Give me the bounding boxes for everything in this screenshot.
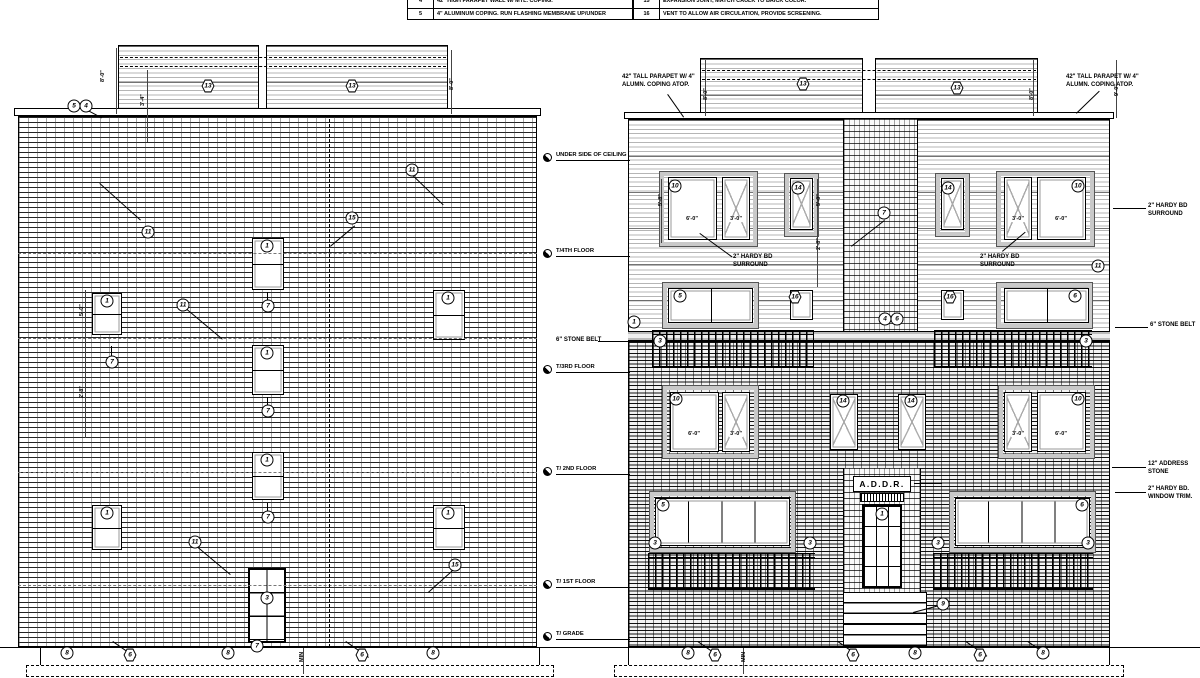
keynote-tag-number: 6 [848, 650, 859, 661]
drawing-line [18, 585, 537, 586]
drawing-line [18, 472, 537, 473]
level-marker: T/ 2ND FLOOR [556, 466, 630, 475]
keynote-tag-number: 13 [952, 83, 963, 94]
annotation-text: 3'-4" [140, 94, 146, 106]
annotation-text: 2" HARDY BD [1148, 203, 1187, 209]
keynote-tag-number: 16 [790, 292, 801, 303]
window [955, 498, 1090, 546]
window [1004, 177, 1032, 240]
keynote-tag: 1 [628, 316, 641, 329]
annotation-text: 2" HARDY BD [733, 254, 772, 260]
annotation-text: A.D.D.R. [859, 479, 904, 489]
keynote-tag-number: 7 [252, 641, 263, 652]
keynote-tag-number: 7 [263, 406, 274, 417]
keynote-tag-number: 11 [190, 537, 201, 548]
drawing-line [598, 341, 628, 342]
annotation-text: 2'-8" [816, 238, 822, 250]
keynote-tag: 14 [792, 182, 805, 195]
drawing-line [914, 483, 942, 484]
annotation-text: MIN [299, 652, 305, 662]
level-marker: T/ GRADE [556, 631, 630, 640]
keynote-tag: 1 [442, 292, 455, 305]
keynote-tag: 7 [262, 511, 275, 524]
drawing-line [1115, 327, 1148, 328]
annotation-text: 8'-0" [449, 78, 455, 90]
keynote-tag: 1 [876, 508, 889, 521]
keynote-tag: 8 [222, 647, 235, 660]
keynote-tag-number: 8 [910, 648, 921, 659]
keynote-tag: 9 [937, 598, 950, 611]
annotation-text: 6'-0" [687, 431, 701, 437]
window [655, 498, 790, 546]
keynote-tag-number: 8 [223, 648, 234, 659]
level-marker: T/ 1ST FLOOR [556, 579, 630, 588]
keynote-tag-number: 1 [877, 509, 888, 520]
annotation-text: 5'-0" [79, 304, 85, 316]
keynote-tag-number: 1 [443, 508, 454, 519]
keynote-tag: 5 [674, 290, 687, 303]
level-marker-flag-icon [543, 249, 552, 258]
keynote-tag: 1 [261, 347, 274, 360]
keynote-number: 16 [634, 9, 660, 19]
drawing-line [0, 647, 1200, 648]
keynote-tag: 4 [80, 100, 93, 113]
annotation-text: 42" TALL PARAPET W/ 4" [622, 74, 695, 80]
keynote-tag: 11 [1092, 260, 1105, 273]
keynote-tag: 10 [669, 180, 682, 193]
keynote-tag-number: 10 [1073, 394, 1084, 405]
keynote-tag-number: 11 [407, 165, 418, 176]
drawing-line [116, 48, 117, 114]
keynote-tag-number: 6 [357, 650, 368, 661]
keynote-number: 15 [634, 0, 660, 8]
annotation-text: MIN [741, 652, 747, 662]
drawing-line [329, 119, 330, 647]
annotation-text: 5'-8" [658, 194, 664, 206]
drawing-line [120, 57, 446, 58]
building-element [843, 592, 927, 646]
keynote-tag-number: 5 [69, 101, 80, 112]
keynote-tag-number: 10 [670, 181, 681, 192]
keynote-tag-number: 14 [793, 183, 804, 194]
annotation-text: WINDOW TRIM. [1148, 494, 1192, 500]
keynote-table-left: 4 42" HIGH PARAPET WALL W/ MTL. COPING. … [407, 0, 633, 20]
drawing-line [85, 290, 86, 438]
window [722, 392, 750, 452]
keynote-tag-number: 6 [710, 650, 721, 661]
annotation-text: SURROUND [980, 262, 1015, 268]
keynote-tag: 8 [427, 647, 440, 660]
drawing-line [702, 70, 1036, 71]
keynote-tag: 10 [1072, 393, 1085, 406]
level-name: T/3RD FLOOR [556, 364, 630, 373]
drawing-line [147, 70, 148, 142]
keynote-tag-number: 3 [1083, 538, 1094, 549]
keynote-tag-number: 1 [262, 455, 273, 466]
building-element [860, 493, 904, 502]
keynote-tag-number: 8 [683, 648, 694, 659]
keynote-tag: 1 [442, 507, 455, 520]
keynote-tag-number: 16 [945, 292, 956, 303]
level-name: T/ 2ND FLOOR [556, 466, 630, 475]
drawing-line [702, 79, 1036, 80]
keynote-tag: 3 [649, 537, 662, 550]
keynote-tag-number: 9 [938, 599, 949, 610]
annotation-text: 8'-0" [1029, 88, 1035, 100]
keynote-tag: 3 [932, 537, 945, 550]
annotation-text: 42" TALL PARAPET W/ 4" [1066, 74, 1139, 80]
annotation-text: ALUMN. COPING ATOP. [622, 82, 689, 88]
building-element [248, 568, 286, 643]
keynote-tag: 8 [1037, 647, 1050, 660]
keynote-number: 5 [408, 9, 434, 19]
building-element [624, 112, 1114, 119]
annotation-text: 3'-0" [1011, 431, 1025, 437]
keynote-tag: 6 [1076, 499, 1089, 512]
annotation-text: 3'-0" [1011, 216, 1025, 222]
keynote-tag-number: 13 [203, 81, 214, 92]
keynote-tag-number: 6 [892, 314, 903, 325]
annotation-text: 12" ADDRESS [1148, 461, 1188, 467]
keynote-tag-number: 4 [880, 314, 891, 325]
keynote-tag: 8 [682, 647, 695, 660]
level-name: T/4TH FLOOR [556, 248, 630, 257]
drawing-line [1112, 467, 1146, 468]
annotation-text: 6'-0" [1054, 431, 1068, 437]
keynote-table-right: 15 EXPANSION JOINT, MATCH CAULK TO BRICK… [633, 0, 879, 20]
keynote-tag-number: 3 [655, 336, 666, 347]
building-element [700, 58, 863, 114]
keynote-tag: 15 [449, 559, 462, 572]
keynote-tag: 8 [909, 647, 922, 660]
level-name: T/ 1ST FLOOR [556, 579, 630, 588]
keynote-tag-number: 15 [347, 213, 358, 224]
building-element [26, 665, 554, 677]
keynote-tag: 3 [804, 537, 817, 550]
keynote-tag: 10 [670, 393, 683, 406]
annotation-text: ALUMN. COPING ATOP. [1066, 82, 1133, 88]
keynote-tag-number: 3 [805, 538, 816, 549]
keynote-tag-number: 1 [102, 296, 113, 307]
keynote-tag-number: 6 [1070, 291, 1081, 302]
keynote-tag: 5 [657, 499, 670, 512]
keynote-tag-number: 14 [838, 396, 849, 407]
building-element [648, 553, 815, 590]
keynote-tag-number: 5 [658, 500, 669, 511]
annotation-text: 6" STONE BELT [1150, 322, 1195, 328]
keynote-tag-number: 14 [906, 396, 917, 407]
keynote-tag: 6 [891, 313, 904, 326]
drawing-line [1076, 91, 1100, 114]
keynote-number: 4 [408, 0, 434, 8]
keynote-tag-number: 6 [1077, 500, 1088, 511]
keynote-tag-number: 11 [143, 227, 154, 238]
annotation-text: 8'-0" [100, 70, 106, 82]
keynote-tag: 14 [942, 182, 955, 195]
keynote-tag: 10 [1072, 180, 1085, 193]
keynote-tag: 3 [261, 592, 274, 605]
annotation-text: 3'-0" [729, 216, 743, 222]
keynote-tag-number: 5 [675, 291, 686, 302]
keynote-text: 42" HIGH PARAPET WALL W/ MTL. COPING. [434, 0, 632, 8]
keynote-tag: 15 [346, 212, 359, 225]
building-element [614, 665, 1124, 677]
keynote-tag: 14 [837, 395, 850, 408]
keynote-tag-number: 1 [262, 241, 273, 252]
keynote-tag-number: 8 [1038, 648, 1049, 659]
building-element [934, 330, 1092, 368]
keynote-tag-number: 3 [650, 538, 661, 549]
keynote-tag: 3 [654, 335, 667, 348]
keynote-tag: 7 [262, 300, 275, 313]
keynote-text: VENT TO ALLOW AIR CIRCULATION, PROVIDE S… [660, 9, 878, 19]
keynote-tag: 8 [61, 647, 74, 660]
keynote-tag-number: 15 [450, 560, 461, 571]
keynote-tag-number: 10 [1073, 181, 1084, 192]
keynote-tag-number: 7 [263, 301, 274, 312]
level-marker-flag-icon [543, 467, 552, 476]
annotation-text: SURROUND [1148, 211, 1183, 217]
building-element [652, 330, 814, 368]
keynote-tag-number: 7 [263, 512, 274, 523]
keynote-tag-number: 13 [347, 81, 358, 92]
annotation-text: 8'-0" [703, 88, 709, 100]
annotation-text: 2'-8" [79, 386, 85, 398]
drawing-line [18, 253, 537, 254]
annotation-text: 5'-0" [816, 194, 822, 206]
level-marker: T/4TH FLOOR [556, 248, 630, 257]
keynote-row: 5 4" ALUMINUM COPING. RUN FLASHING MEMBR… [408, 8, 632, 19]
keynote-tag: 11 [189, 536, 202, 549]
keynote-tag: 3 [1080, 335, 1093, 348]
keynote-tag: 1 [261, 454, 274, 467]
keynote-tag: 7 [262, 405, 275, 418]
keynote-tag: 7 [106, 356, 119, 369]
level-marker-flag-icon [543, 153, 552, 162]
annotation-text: 2" HARDY BD. [1148, 486, 1189, 492]
level-name: UNDER SIDE OF CEILING [556, 152, 630, 161]
keynote-row: 16 VENT TO ALLOW AIR CIRCULATION, PROVID… [634, 8, 878, 19]
keynote-tag: 3 [1082, 537, 1095, 550]
building-element [266, 45, 448, 113]
keynote-tag: 6 [1069, 290, 1082, 303]
annotation-text: 6'-0" [1054, 216, 1068, 222]
keynote-tag: 11 [406, 164, 419, 177]
keynote-tag-number: 7 [879, 208, 890, 219]
window [722, 177, 750, 240]
keynote-tag-number: 3 [262, 593, 273, 604]
keynote-tag-number: 11 [178, 300, 189, 311]
keynote-tag: 1 [101, 507, 114, 520]
keynote-tag-number: 10 [671, 394, 682, 405]
annotation-text: STONE [1148, 469, 1169, 475]
keynote-tag-number: 1 [262, 348, 273, 359]
drawing-line [1115, 492, 1146, 493]
keynote-tag-number: 1 [629, 317, 640, 328]
keynote-tag-number: 1 [443, 293, 454, 304]
annotation-text: 6" STONE BELT [556, 337, 601, 343]
keynote-tag-number: 11 [1093, 261, 1104, 272]
building-element [40, 647, 540, 665]
keynote-tag: 7 [878, 207, 891, 220]
keynote-tag: 7 [251, 640, 264, 653]
keynote-tag-number: 3 [1081, 336, 1092, 347]
keynote-tag-number: 7 [107, 357, 118, 368]
keynote-tag: 1 [261, 240, 274, 253]
annotation-text: SURROUND [733, 262, 768, 268]
drawing-line [661, 179, 662, 243]
keynote-tag: 11 [177, 299, 190, 312]
keynote-tag-number: 1 [102, 508, 113, 519]
keynote-tag: 1 [101, 295, 114, 308]
level-marker-flag-icon [543, 365, 552, 374]
building-element [843, 119, 918, 341]
keynote-tag-number: 6 [975, 650, 986, 661]
drawing-line [1113, 208, 1146, 209]
level-marker: UNDER SIDE OF CEILING [556, 152, 630, 161]
keynote-text: EXPANSION JOINT, MATCH CAULK TO BRICK CO… [660, 0, 878, 8]
keynote-tag-number: 3 [933, 538, 944, 549]
level-marker-flag-icon [543, 632, 552, 641]
keynote-row: 15 EXPANSION JOINT, MATCH CAULK TO BRICK… [634, 0, 878, 8]
keynote-tag-number: 8 [62, 648, 73, 659]
building-element [933, 553, 1093, 590]
annotation-text: 6'-0" [685, 216, 699, 222]
elevation-drawing-sheet: 4 42" HIGH PARAPET WALL W/ MTL. COPING. … [0, 0, 1200, 678]
keynote-text: 4" ALUMINUM COPING. RUN FLASHING MEMBRAN… [434, 9, 632, 19]
keynote-row: 4 42" HIGH PARAPET WALL W/ MTL. COPING. [408, 0, 632, 8]
keynote-tag: 11 [142, 226, 155, 239]
drawing-line [120, 66, 446, 67]
drawing-line [18, 338, 537, 339]
level-marker-flag-icon [543, 580, 552, 589]
keynote-tag: 14 [905, 395, 918, 408]
annotation-text: 9'-0" [1114, 84, 1120, 96]
keynote-tag-number: 8 [428, 648, 439, 659]
keynote-tag-number: 4 [81, 101, 92, 112]
keynote-tag-number: 6 [125, 650, 136, 661]
annotation-text: 2" HARDY BD [980, 254, 1019, 260]
level-marker: T/3RD FLOOR [556, 364, 630, 373]
keynote-tag-number: 14 [943, 183, 954, 194]
annotation-text: 3'-0" [729, 431, 743, 437]
keynote-tag-number: 13 [798, 79, 809, 90]
window [1004, 392, 1032, 452]
level-name: T/ GRADE [556, 631, 630, 640]
